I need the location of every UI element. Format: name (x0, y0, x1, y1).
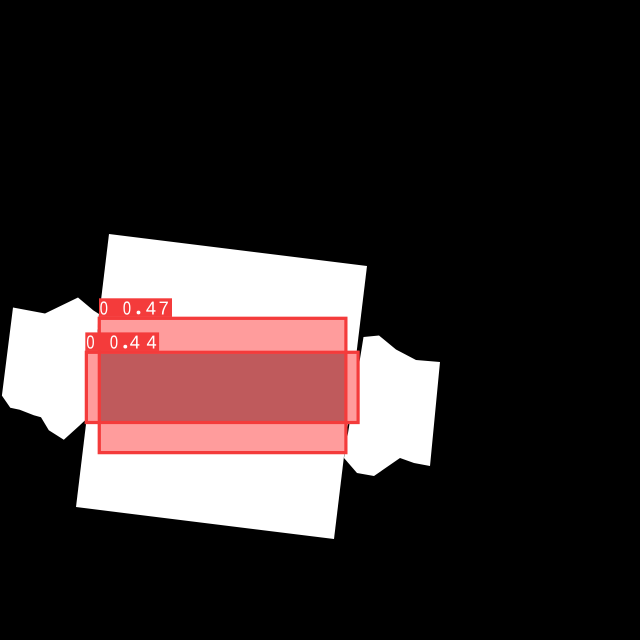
svg-text:4: 4 (146, 297, 156, 318)
svg-text:0: 0 (123, 297, 131, 318)
svg-text:4: 4 (130, 332, 140, 353)
svg-text:4: 4 (146, 332, 156, 353)
svg-text:0: 0 (100, 297, 108, 318)
svg-text:0: 0 (110, 332, 118, 353)
svg-text:0: 0 (86, 332, 94, 353)
svg-text:7: 7 (159, 297, 169, 318)
